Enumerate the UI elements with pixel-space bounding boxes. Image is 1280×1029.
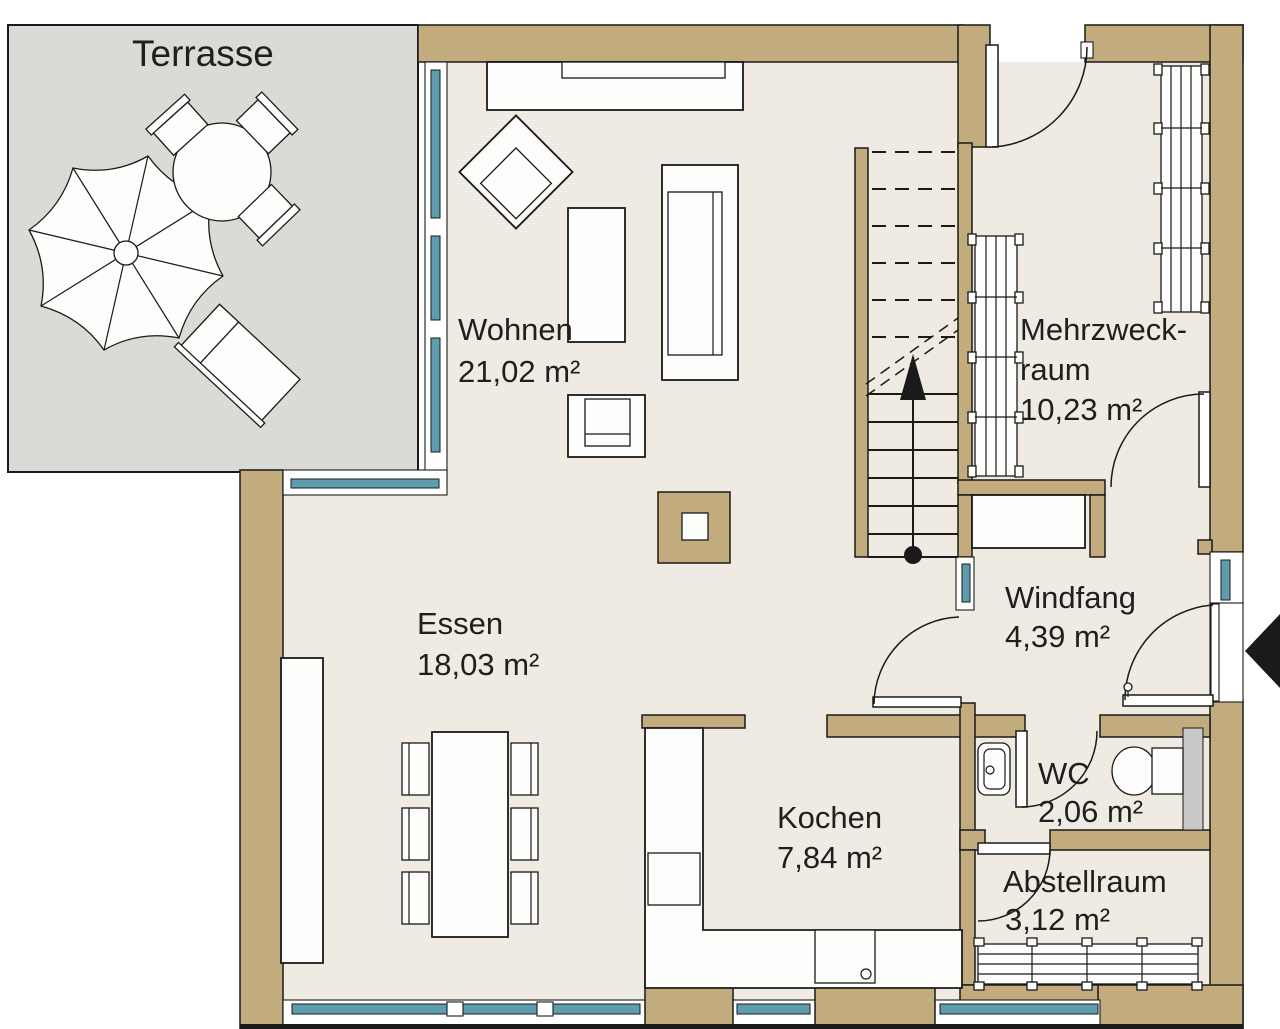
entrance-arrow-icon	[1245, 614, 1280, 688]
wall-stair-left	[855, 148, 868, 557]
window-windfang-west	[956, 557, 974, 610]
toilet	[1112, 747, 1183, 795]
wall-kochen-wc-divider	[960, 703, 975, 850]
stair-start-dot	[904, 546, 922, 564]
sofa	[662, 165, 738, 380]
sideboard-essen	[281, 658, 323, 963]
wall-right-lower	[1210, 700, 1243, 1029]
wall-kitchen-wc-top	[827, 715, 1025, 737]
window-windfang-east	[1210, 552, 1243, 605]
floor-plan-page: Terrasse	[0, 0, 1280, 1029]
shelf-mehrzweck-west	[968, 234, 1023, 477]
window-essen-west	[283, 470, 447, 495]
wall-top-jamb	[958, 25, 990, 147]
wall-left-exterior	[240, 470, 283, 1029]
chimney-column	[658, 492, 730, 563]
kochen-label: Kochen	[777, 800, 882, 835]
dining-table	[432, 732, 508, 937]
ab stellraum-area: 3,12 m²	[1005, 902, 1110, 937]
wc-label: WC	[1038, 756, 1090, 791]
wall-right-upper	[1210, 25, 1243, 552]
mehrzweckraum-label-1: Mehrzweck-	[1020, 312, 1187, 347]
dining-chair	[402, 743, 429, 795]
wall-top-left	[418, 25, 963, 62]
closet-windfang	[972, 495, 1085, 548]
dining-chair	[511, 808, 538, 860]
sideboard-niche	[562, 62, 725, 78]
wall-wc-bottom-right	[1050, 830, 1210, 850]
wall-bottom-pier-1	[645, 985, 733, 1029]
shelf-mehrzweck-east	[1154, 64, 1209, 313]
wohnen-area: 21,02 m²	[458, 354, 580, 389]
stove	[648, 853, 700, 905]
abstellraum-label: Abstellraum	[1003, 864, 1167, 899]
wall-left-of-closet	[958, 495, 972, 557]
dining-chair	[511, 872, 538, 924]
wc-sink	[978, 743, 1010, 795]
terrace-label: Terrasse	[132, 33, 274, 74]
service-duct	[1183, 728, 1203, 830]
mehrzweckraum-label-2: raum	[1020, 352, 1091, 387]
shelf-abstellraum	[974, 938, 1202, 990]
wall-stair-right	[958, 143, 972, 483]
wall-kitchen-stub	[642, 715, 745, 728]
essen-area: 18,03 m²	[417, 647, 539, 682]
dining-chair	[402, 808, 429, 860]
tv-stand	[568, 395, 645, 457]
wall-windfang-top-return	[1090, 495, 1105, 557]
wohnen-label: Wohnen	[458, 312, 573, 347]
wall-below-mehrzweckraum	[958, 480, 1105, 495]
mehrzweckraum-area: 10,23 m²	[1020, 392, 1142, 427]
windfang-label: Windfang	[1005, 580, 1136, 615]
essen-label: Essen	[417, 606, 503, 641]
wc-area: 2,06 m²	[1038, 794, 1143, 829]
dining-chair	[402, 872, 429, 924]
kochen-area: 7,84 m²	[777, 840, 882, 875]
dining-chair	[511, 743, 538, 795]
wall-bottom-right-corner	[1098, 985, 1243, 1029]
plan-bottom-edge	[240, 1024, 1243, 1029]
kitchen-sink	[815, 930, 875, 983]
wall-bottom-pier-2	[815, 985, 935, 1029]
floor-plan-drawing: Terrasse	[0, 0, 1280, 1029]
coffee-table	[568, 208, 625, 342]
terrace-area: Terrasse	[8, 25, 418, 472]
windfang-area: 4,39 m²	[1005, 619, 1110, 654]
window-wohnen-terrace	[425, 62, 447, 482]
